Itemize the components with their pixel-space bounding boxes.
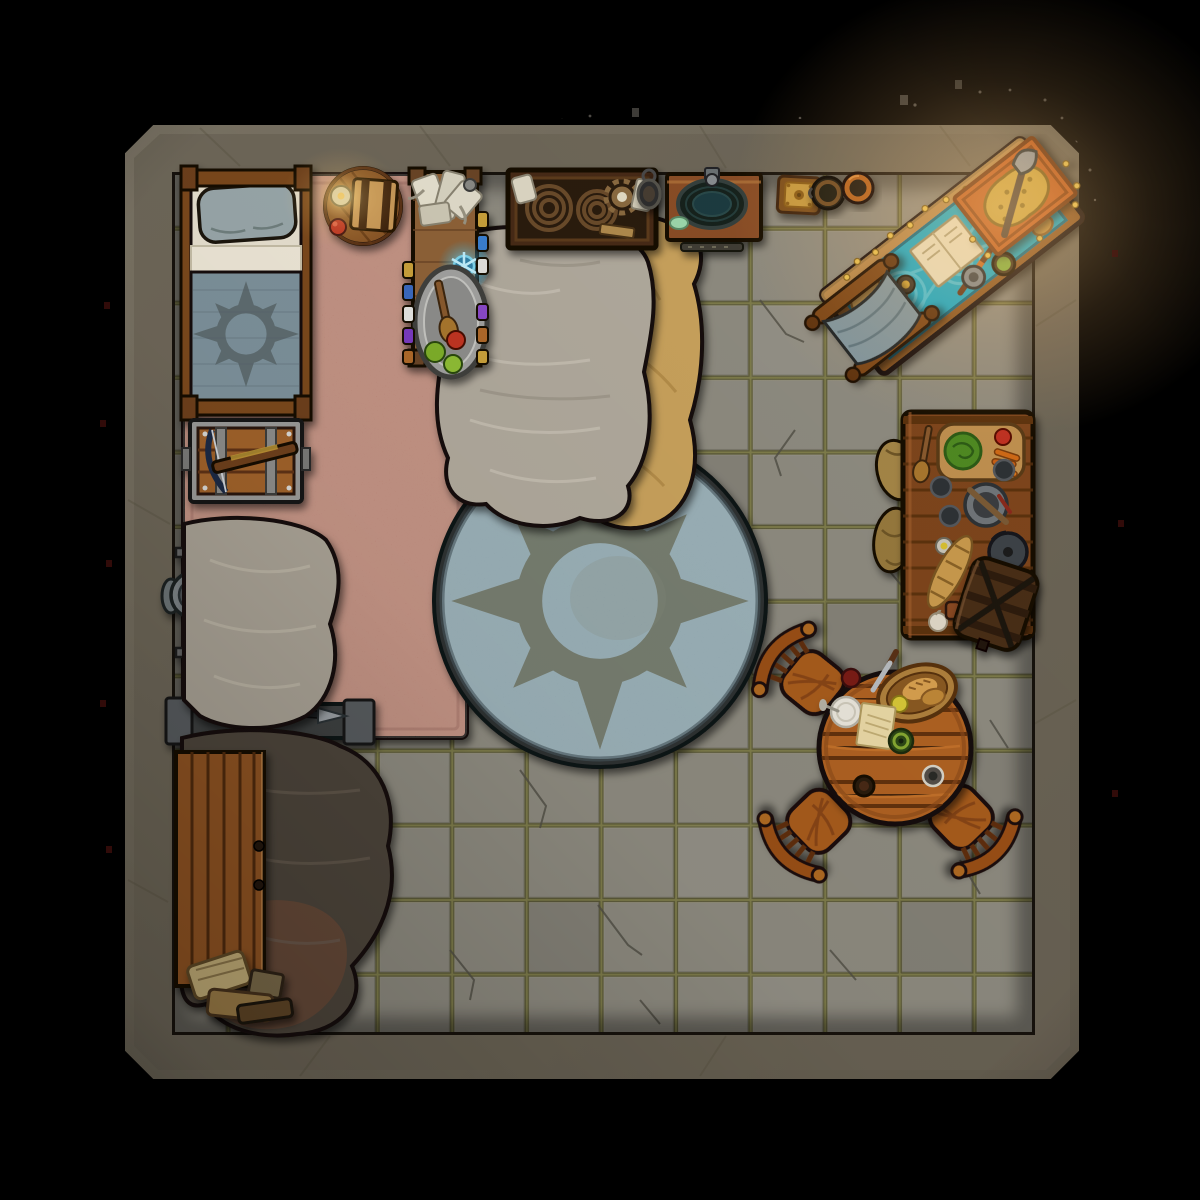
lighting-overlays [0,0,1200,1200]
battle-map-canvas [0,0,1200,1200]
battle-map-stage [0,0,1200,1200]
